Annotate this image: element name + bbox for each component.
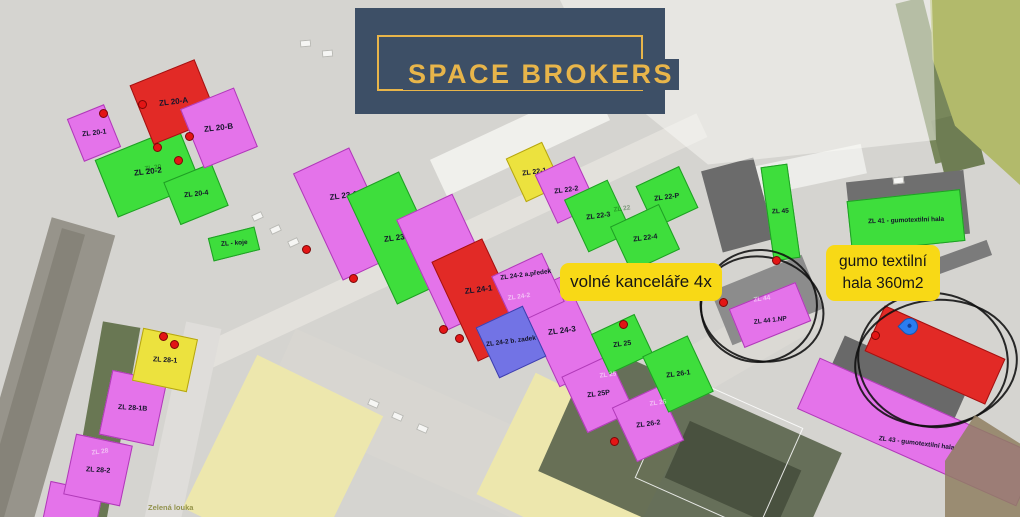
parcel-label: ZL 28-1: [153, 356, 178, 365]
parcel-label: ZL - koje: [220, 240, 247, 248]
space-brokers-logo: SPACE BROKERS: [355, 8, 665, 114]
vehicle: [269, 224, 282, 235]
parcel-label: ZL 20-1: [81, 128, 106, 138]
parcel-label: ZL 24-3: [548, 325, 577, 337]
parcel-zl-28-2: ZL 28-2: [63, 434, 133, 507]
red-marker-dot: [153, 143, 162, 152]
vehicle: [893, 176, 905, 184]
callout-free-offices-text: volné kanceláře 4x: [570, 272, 712, 292]
parcel-label: ZL 22-4: [632, 233, 657, 243]
parcel-label: ZL 43 - gumotextilní hala: [878, 436, 954, 452]
red-marker-dot: [185, 132, 194, 141]
red-marker-dot: [302, 245, 311, 254]
vehicle: [300, 40, 312, 48]
red-marker-dot: [170, 340, 179, 349]
site-plan-map: ZL 20-2ZL 20-4ZL 20-AZL 20-BZL 20-1ZL - …: [0, 0, 1020, 517]
meadow-label: Zelená louka: [148, 503, 193, 512]
parcel-zl-koje: ZL - koje: [208, 227, 260, 262]
parcel-label: ZL 28-1B: [118, 404, 148, 413]
red-marker-dot: [99, 109, 108, 118]
parcel-label: ZL 28-2: [86, 466, 111, 475]
red-marker-dot: [174, 156, 183, 165]
ghost-label-g-zl22: ZL 22: [613, 204, 631, 213]
callout-free-offices: volné kanceláře 4x: [560, 263, 722, 301]
parcel-label: ZL 22-3: [585, 211, 610, 221]
parcel-label: ZL 41 - gumotextilní hala: [868, 217, 944, 226]
parcel-label: ZL 26-1: [665, 369, 690, 379]
red-marker-dot: [439, 325, 448, 334]
gray-strip-zl41: [934, 240, 992, 274]
callout-gumo-hala-line1: gumo textilní: [839, 251, 927, 273]
parcel-label: ZL 20-A: [159, 96, 189, 107]
parcel-label: ZL 22-P: [654, 192, 680, 202]
red-marker-dot: [619, 320, 628, 329]
parcel-label: ZL 20-4: [183, 189, 208, 199]
logo-title: SPACE BROKERS: [403, 59, 679, 90]
red-marker-dot: [455, 334, 464, 343]
parcel-label: ZL 24-1: [464, 284, 493, 296]
vehicle: [251, 211, 264, 222]
vehicle: [287, 237, 300, 248]
parcel-label: ZL 20-B: [204, 122, 234, 133]
blue-map-pin-core: [907, 322, 913, 328]
red-marker-dot: [719, 298, 728, 307]
red-marker-dot: [349, 274, 358, 283]
red-marker-dot: [772, 256, 781, 265]
red-marker-dot: [159, 332, 168, 341]
parcel-label: ZL 45: [771, 208, 788, 215]
red-marker-dot: [871, 331, 880, 340]
parcel-label: ZL 25P: [586, 389, 610, 399]
callout-gumo-hala-line2: hala 360m2: [842, 273, 923, 295]
parcel-label: ZL 24-2 a.předek: [500, 269, 552, 282]
parcel-label: ZL 26-2: [635, 419, 660, 429]
callout-gumo-hala: gumo textilní hala 360m2: [826, 245, 940, 301]
vehicle: [322, 50, 334, 58]
parcel-zl-41: ZL 41 - gumotextilní hala: [847, 189, 966, 253]
red-marker-dot: [138, 100, 147, 109]
parcel-label: ZL 25: [613, 339, 632, 348]
red-marker-dot: [610, 437, 619, 446]
parcel-label: ZL 24-2 b. zadek: [486, 336, 537, 349]
